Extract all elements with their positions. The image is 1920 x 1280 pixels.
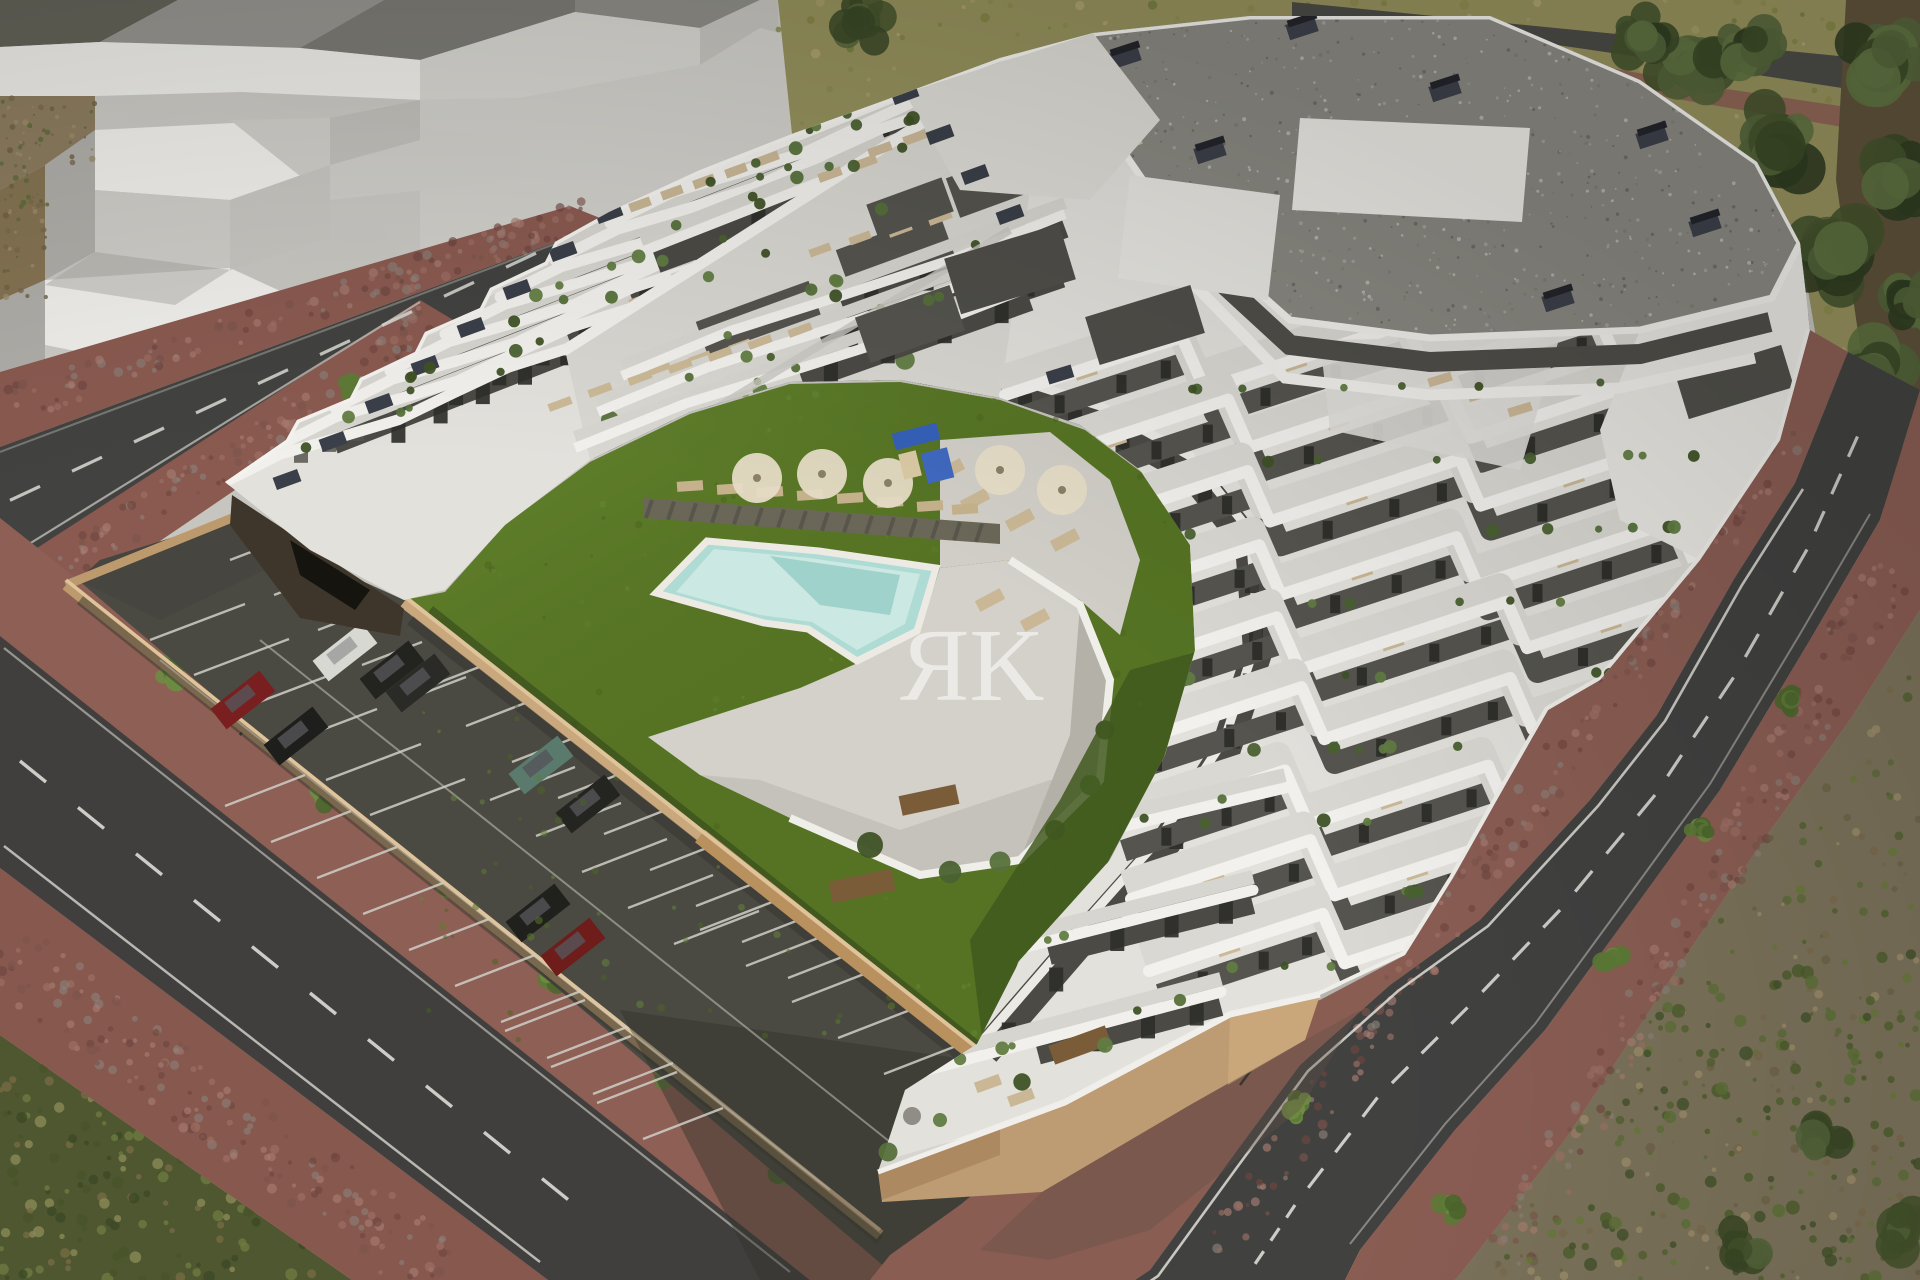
svg-text:ЯK: ЯK (900, 608, 1044, 723)
